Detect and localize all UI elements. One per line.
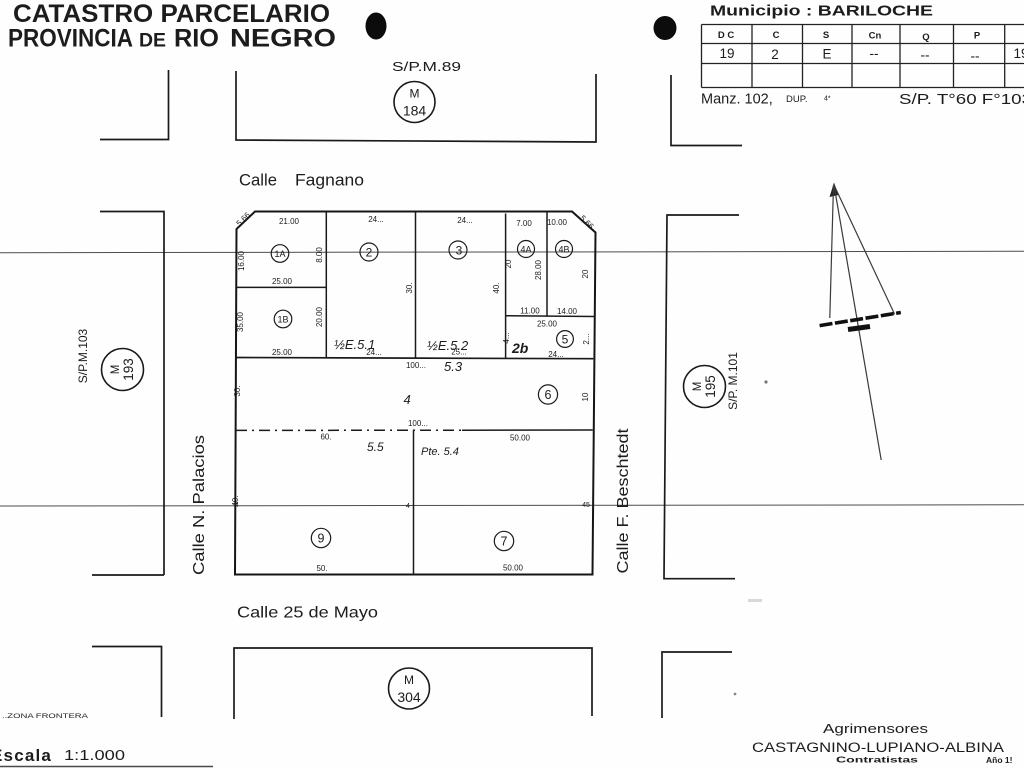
svg-text:100...: 100...	[408, 419, 428, 428]
svg-text:11.00: 11.00	[520, 307, 540, 316]
svg-text:RIO: RIO	[174, 25, 219, 53]
svg-text:304: 304	[397, 689, 421, 705]
svg-text:4*: 4*	[824, 96, 831, 103]
svg-text:--: --	[921, 48, 930, 63]
svg-text:4: 4	[235, 502, 239, 509]
svg-text:NEGRO: NEGRO	[230, 25, 336, 53]
svg-text:Pte. 5.4: Pte. 5.4	[421, 446, 459, 458]
svg-text:50.00: 50.00	[503, 564, 524, 573]
svg-text:C: C	[773, 30, 780, 41]
svg-text:25.00: 25.00	[272, 277, 293, 286]
svg-text:19: 19	[719, 46, 734, 61]
svg-text:60.: 60.	[320, 433, 331, 442]
svg-text:24...: 24...	[457, 216, 473, 225]
svg-text:DUP.: DUP.	[786, 94, 807, 105]
svg-text:14.00: 14.00	[557, 307, 578, 316]
svg-text:8.00: 8.00	[315, 247, 324, 263]
svg-text:M: M	[404, 673, 414, 687]
svg-text:Año 1!: Año 1!	[986, 755, 1013, 765]
svg-text:2: 2	[771, 47, 779, 62]
svg-text:28.00: 28.00	[534, 259, 543, 280]
svg-text:2b: 2b	[511, 340, 529, 356]
svg-text:45: 45	[582, 502, 590, 509]
svg-text:Calle: Calle	[239, 172, 277, 190]
svg-text:4B: 4B	[558, 245, 569, 255]
svg-text:6: 6	[545, 388, 552, 402]
svg-text:20: 20	[581, 269, 590, 278]
svg-text:100...: 100...	[406, 361, 426, 370]
svg-text:P: P	[974, 31, 981, 42]
svg-text:CASTAGNINO-LUPIANO-ALBINA: CASTAGNINO-LUPIANO-ALBINA	[752, 740, 1004, 755]
svg-text:1:1.000: 1:1.000	[64, 748, 125, 764]
svg-text:Manz. 102,: Manz. 102,	[701, 92, 773, 108]
svg-text:4...: 4...	[502, 332, 511, 343]
svg-text:Municipio : BARILOCHE: Municipio : BARILOCHE	[710, 3, 933, 20]
svg-text:S/P. M.101: S/P. M.101	[726, 352, 740, 410]
svg-text:--: --	[870, 46, 879, 61]
svg-text:1B: 1B	[277, 315, 288, 325]
svg-text:D C: D C	[718, 30, 735, 41]
svg-text:20.00: 20.00	[315, 306, 324, 327]
svg-text:19: 19	[1013, 46, 1024, 61]
svg-text:Calle F. Beschtedt: Calle F. Beschtedt	[615, 428, 632, 574]
svg-text:Q: Q	[922, 32, 929, 43]
svg-text:2: 2	[366, 246, 373, 260]
svg-text:Cn: Cn	[869, 31, 882, 42]
svg-text:25.00: 25.00	[537, 320, 558, 329]
svg-text:50.: 50.	[316, 564, 327, 573]
svg-text:4: 4	[404, 392, 411, 407]
svg-text:--: --	[971, 49, 980, 64]
svg-text:195: 195	[703, 375, 718, 398]
svg-text:Escala: Escala	[0, 746, 52, 765]
svg-text:10.00: 10.00	[547, 218, 568, 227]
svg-text:Agrimensores: Agrimensores	[823, 722, 928, 736]
svg-text:184: 184	[403, 103, 427, 119]
svg-text:10: 10	[581, 392, 590, 401]
svg-text:5.3: 5.3	[444, 359, 463, 374]
svg-text:7.00: 7.00	[516, 219, 532, 228]
svg-text:25...: 25...	[451, 348, 467, 357]
svg-text:193: 193	[121, 358, 136, 381]
svg-text:Calle N. Palacios: Calle N. Palacios	[191, 435, 208, 575]
svg-text:Calle 25 de Mayo: Calle 25 de Mayo	[237, 605, 378, 622]
svg-text:50.00: 50.00	[510, 434, 531, 443]
svg-text:30.: 30.	[233, 385, 242, 396]
svg-text:5: 5	[562, 333, 569, 347]
svg-text:2...: 2...	[582, 333, 591, 344]
svg-text:4: 4	[406, 503, 410, 510]
svg-text:35.00: 35.00	[236, 311, 245, 332]
svg-text:24...: 24...	[366, 348, 382, 357]
svg-text:9: 9	[318, 532, 325, 546]
svg-text:5.5: 5.5	[367, 440, 384, 454]
svg-text:S/P. T°60 F°103: S/P. T°60 F°103	[899, 92, 1024, 108]
svg-text:1A: 1A	[274, 249, 285, 259]
svg-text:DE: DE	[139, 31, 166, 52]
svg-text:30.: 30.	[405, 282, 414, 293]
svg-text:7: 7	[501, 535, 508, 549]
svg-text:24...: 24...	[548, 350, 564, 359]
svg-text:S/P.M.89: S/P.M.89	[392, 60, 461, 74]
svg-text:3: 3	[456, 244, 463, 258]
svg-text:25.00: 25.00	[272, 348, 293, 357]
svg-text:PROVINCIA: PROVINCIA	[8, 25, 133, 53]
svg-text:24...: 24...	[368, 215, 384, 224]
svg-text:40.: 40.	[492, 282, 501, 293]
svg-text:S/P.M.103: S/P.M.103	[76, 328, 90, 383]
svg-text:16.00: 16.00	[237, 250, 246, 271]
svg-text:4A: 4A	[520, 245, 531, 255]
svg-text:21.00: 21.00	[279, 217, 300, 226]
svg-text:20: 20	[504, 259, 513, 268]
svg-text:S: S	[823, 30, 829, 41]
svg-text:Fagnano: Fagnano	[295, 172, 364, 190]
svg-text:..ZONA FRONTERA: ..ZONA FRONTERA	[2, 714, 88, 720]
svg-text:Contratistas: Contratistas	[836, 756, 919, 765]
svg-text:M: M	[410, 87, 420, 101]
svg-text:E: E	[822, 47, 831, 62]
